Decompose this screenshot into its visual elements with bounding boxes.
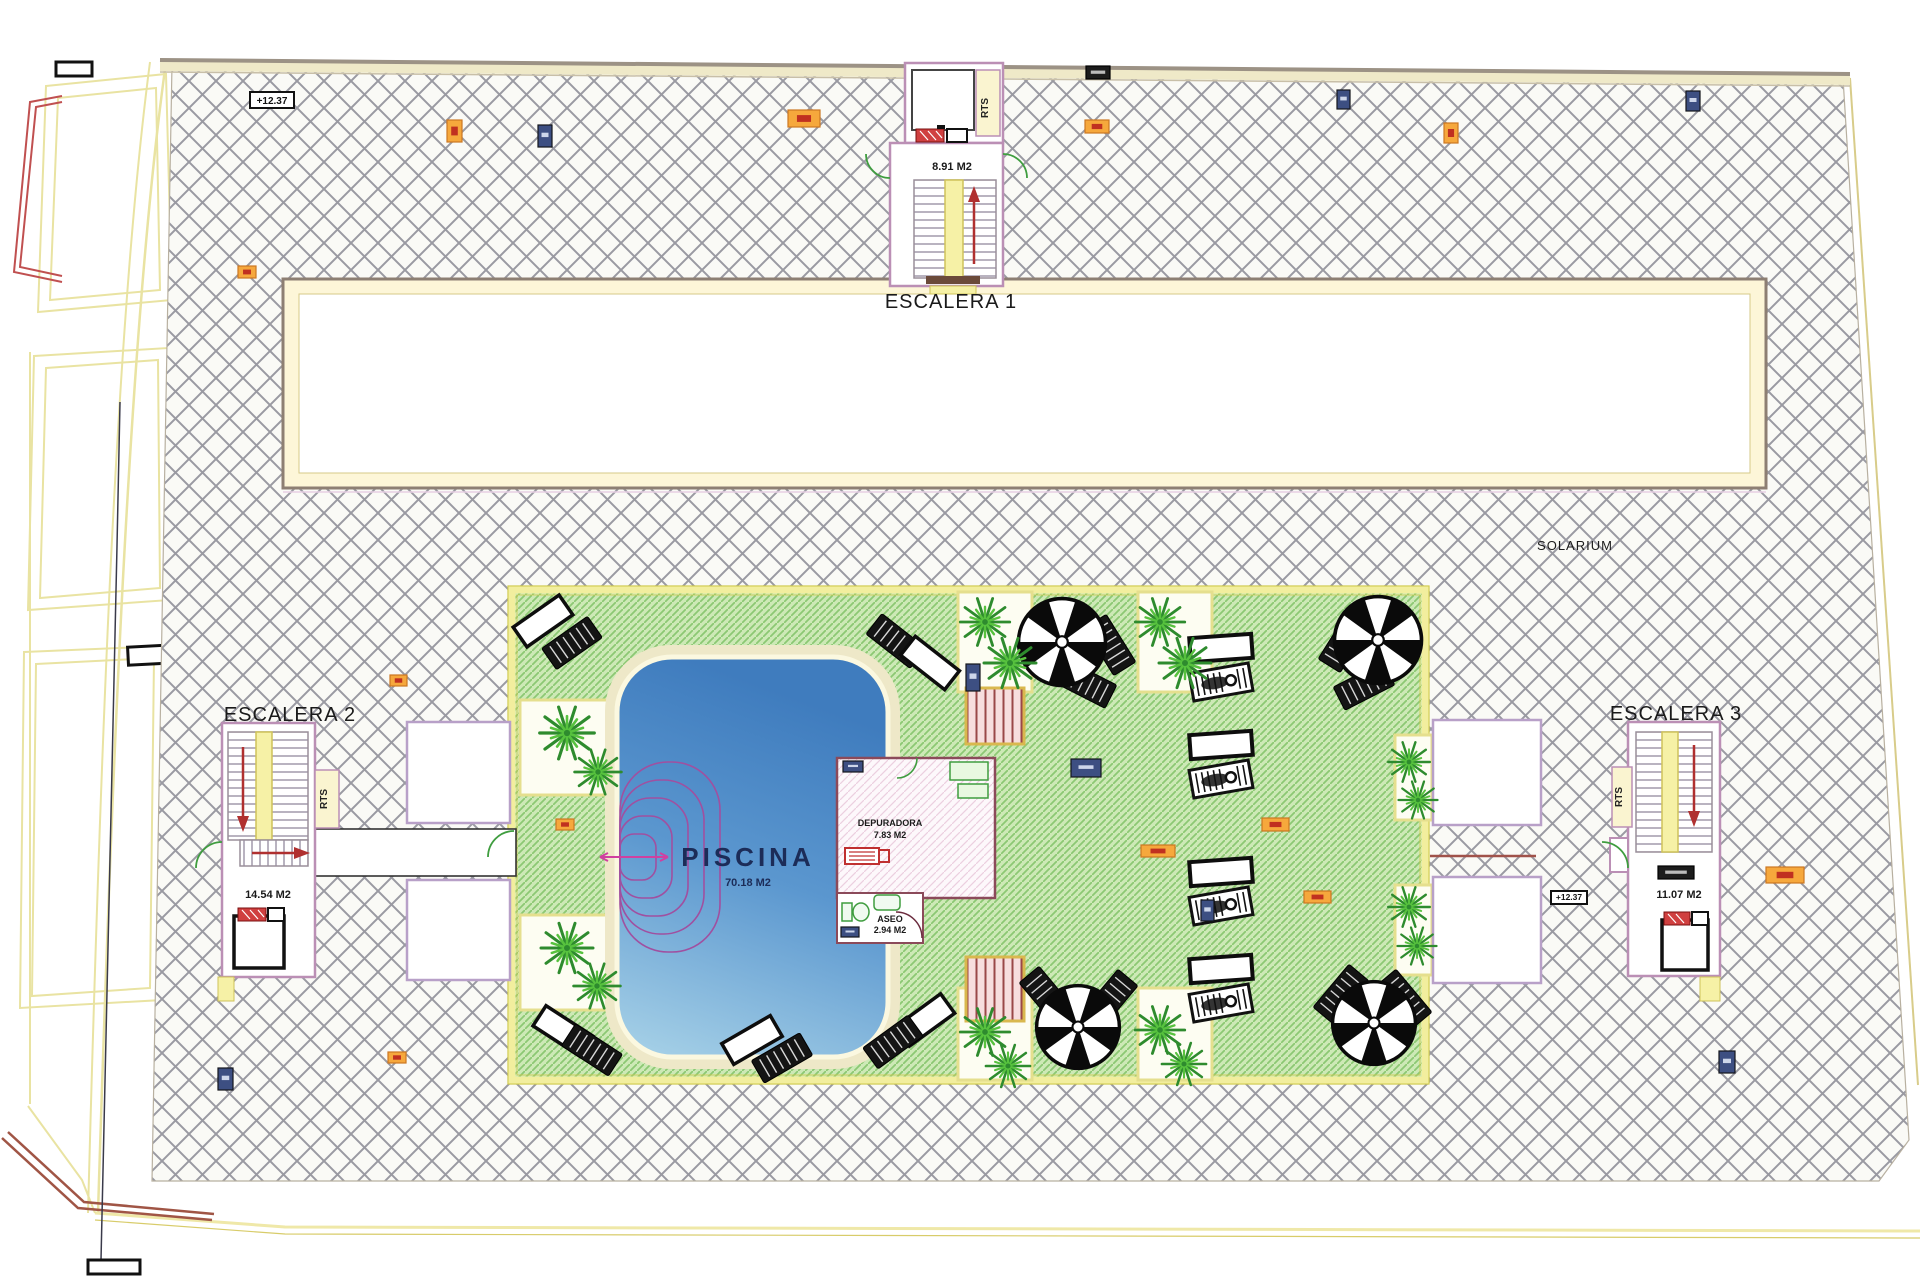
terrace-step-grid [966,957,1024,1021]
solarium-label: SOLARIUM [1537,538,1613,553]
escalera1-area-label: 8.91 M2 [932,161,972,173]
roof-room [1433,720,1541,825]
roof-room [407,722,510,823]
sink-icon [874,895,900,910]
pool-label: PISCINA [681,842,814,872]
stair-stringer [945,180,963,278]
escalera2-area-label: 14.54 M2 [245,889,291,901]
marker-blue [966,664,980,691]
marker-orange [1304,891,1331,903]
marker-orange [1141,845,1175,857]
escalera3-area-label: 11.07 M2 [1656,889,1701,901]
escalera1-label: ESCALERA 1 [885,291,1017,313]
elevator-shaft [912,70,974,130]
marker-orange [1444,123,1458,143]
elevator-icon [1662,912,1708,970]
depuradora-area-label: 7.83 M2 [874,830,907,840]
marker-orange [238,266,256,278]
marker-orange [556,819,574,830]
marker-level: +12.37 [250,92,294,108]
depuradora-label: DEPURADORA [858,818,923,828]
marker-blue [841,927,859,937]
marker-blue [538,125,552,147]
marker-dark [1086,66,1110,79]
marker-level_sm: +12.37 [1551,891,1587,904]
boundary-node [88,1260,140,1274]
marker-blue [1719,1051,1735,1073]
lounger-table [1189,955,1253,983]
roof-room [1433,877,1541,983]
level-marker-text: +12.37 [257,96,288,107]
stair-stringer [1662,732,1678,852]
rts-label: RTS [319,789,330,809]
stair-stringer [256,732,272,840]
toilet-icon [842,903,869,921]
lounger-table [1189,858,1253,886]
umbrella-icon [1335,597,1422,684]
facade-contour-line [101,402,120,1260]
rts-label: RTS [1614,787,1625,807]
depuradora-room: DEPURADORA 7.83 M2 [837,758,995,898]
equipment-icon [958,784,988,798]
access-corridor [315,829,516,876]
escalera2-label: ESCALERA 2 [224,704,356,726]
marker-orange [1085,120,1109,133]
umbrella-icon [1019,599,1106,686]
aseo-area-label: 2.94 M2 [874,925,907,935]
level-marker-text: +12.37 [1556,892,1583,902]
marker-orange [447,120,462,142]
equipment-icon [950,762,988,780]
roof-room [407,880,510,980]
marker-blue [1686,91,1700,111]
pool-area-label: 70.18 M2 [725,877,771,889]
marker-orange [1262,818,1289,831]
marker-orange [388,1052,406,1063]
umbrella-icon [1333,982,1416,1065]
marker-blue [1201,900,1214,921]
lounger-table [1189,731,1253,759]
rts-label: RTS [980,98,991,118]
marker-blue [1071,759,1101,777]
floor-plan-page: PISCINA 70.18 M2 DEPURADORA 7.83 M2 ASEO… [0,0,1920,1280]
boundary-node [56,62,92,76]
marker-dark [1658,866,1694,879]
aseo-label: ASEO [877,914,903,924]
escalera3-label: ESCALERA 3 [1610,703,1742,725]
marker-blue [1337,90,1350,109]
marker-orange [390,675,407,686]
umbrella-icon [1037,986,1120,1069]
elevator-icon [234,908,284,968]
floor-plan-drawing: PISCINA 70.18 M2 DEPURADORA 7.83 M2 ASEO… [0,0,1920,1280]
building-void [283,279,1766,492]
marker-blue [218,1068,233,1090]
terrace-step-grid [966,688,1024,744]
marker-orange [1766,867,1804,883]
marker-orange [788,110,820,127]
marker-blue [843,761,863,772]
